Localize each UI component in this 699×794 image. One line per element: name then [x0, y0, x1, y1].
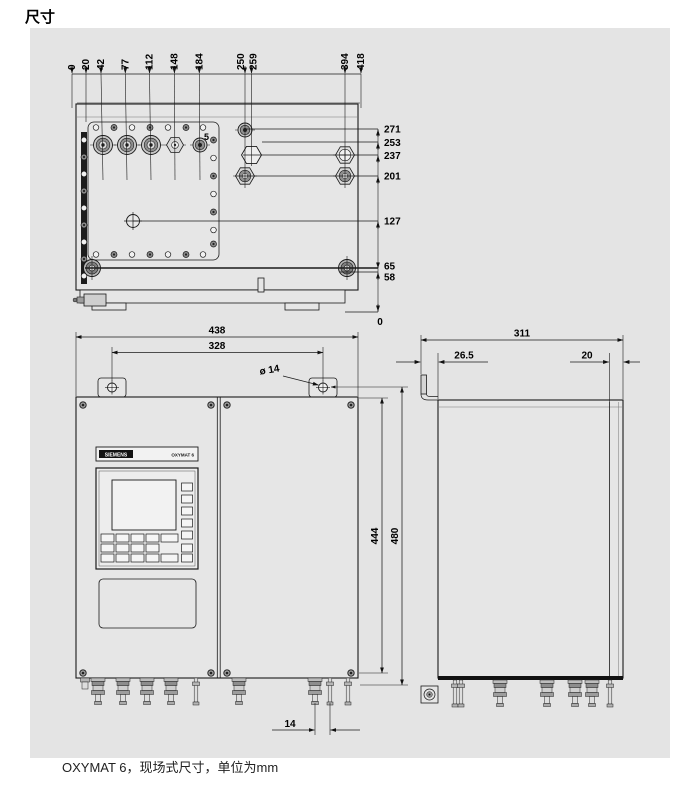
dim-label: 394 — [340, 53, 351, 70]
dimension-drawing: 5 — [30, 28, 670, 758]
keypad-key — [131, 554, 144, 562]
dim-label: 184 — [194, 53, 205, 70]
model-label: OXYMAT 6 — [171, 453, 194, 458]
front-view: SIEMENS OXYMAT 6 — [76, 378, 358, 705]
keypad-key — [116, 554, 129, 562]
keypad-key — [101, 534, 114, 542]
figure-caption: OXYMAT 6，现场式尺寸，单位为mm — [62, 757, 278, 776]
dim-label: 253 — [384, 138, 401, 149]
dim-label: 480 — [390, 527, 401, 544]
keypad-key — [161, 534, 178, 542]
page-title: 尺寸 — [25, 6, 55, 27]
dim-label: 20 — [581, 351, 593, 362]
keypad-key — [182, 554, 193, 562]
dim-label: ø 14 — [259, 363, 281, 377]
dim-label: 271 — [384, 125, 401, 136]
keypad-key — [146, 554, 159, 562]
keypad-key — [116, 534, 129, 542]
keypad-key — [146, 544, 159, 552]
dim-label: 250 — [236, 53, 247, 70]
dim-label: 311 — [514, 329, 531, 340]
dim-label: 148 — [169, 53, 180, 70]
dim-label: 65 — [384, 262, 396, 273]
dim-label: 26.5 — [454, 351, 474, 362]
top-view: 5 — [73, 103, 360, 310]
side-view — [421, 375, 623, 707]
soft-key — [182, 507, 193, 515]
side-dimensions: 311 26.5 20 — [396, 329, 640, 403]
dim-label: 0 — [67, 64, 78, 70]
side-bottom-glands — [452, 680, 614, 707]
soft-key — [182, 531, 193, 539]
display — [112, 480, 176, 530]
soft-key — [182, 519, 193, 527]
mounting-bracket — [421, 375, 438, 400]
dim-label: 0 — [377, 317, 383, 328]
dim-label: 77 — [120, 58, 131, 70]
drawing-panel: 5 — [30, 28, 670, 758]
keypad-key — [131, 534, 144, 542]
keypad-key — [116, 544, 129, 552]
keypad-key — [146, 534, 159, 542]
dim-label: 328 — [209, 341, 226, 352]
dim-label: 259 — [249, 53, 260, 70]
keypad-key — [131, 544, 144, 552]
dim-label: 112 — [145, 53, 156, 70]
keypad-key — [182, 544, 193, 552]
figure: 尺寸 — [0, 0, 699, 794]
dim-label: 201 — [384, 172, 401, 183]
dim-label: 14 — [284, 719, 296, 730]
soft-key — [182, 483, 193, 491]
keypad-key — [161, 554, 178, 562]
dim-label: 58 — [384, 273, 396, 284]
dim-label: 418 — [356, 53, 367, 70]
side-fitting — [421, 686, 438, 703]
nameplate: SIEMENS OXYMAT 6 — [96, 447, 198, 461]
dim-label: 20 — [81, 58, 92, 70]
dim-label: 42 — [96, 58, 107, 70]
dim-label: 444 — [370, 527, 381, 544]
brand-label: SIEMENS — [105, 453, 128, 459]
gland-count-label: 5 — [204, 132, 209, 142]
dim-label: 237 — [384, 151, 401, 162]
operator-panel — [96, 468, 198, 569]
keypad-key — [101, 554, 114, 562]
keypad-key — [101, 544, 114, 552]
soft-key — [182, 495, 193, 503]
front-bottom-glands — [81, 678, 352, 705]
dim-label: 127 — [384, 217, 401, 228]
document-pocket — [99, 579, 196, 628]
dim-label: 438 — [209, 326, 226, 337]
